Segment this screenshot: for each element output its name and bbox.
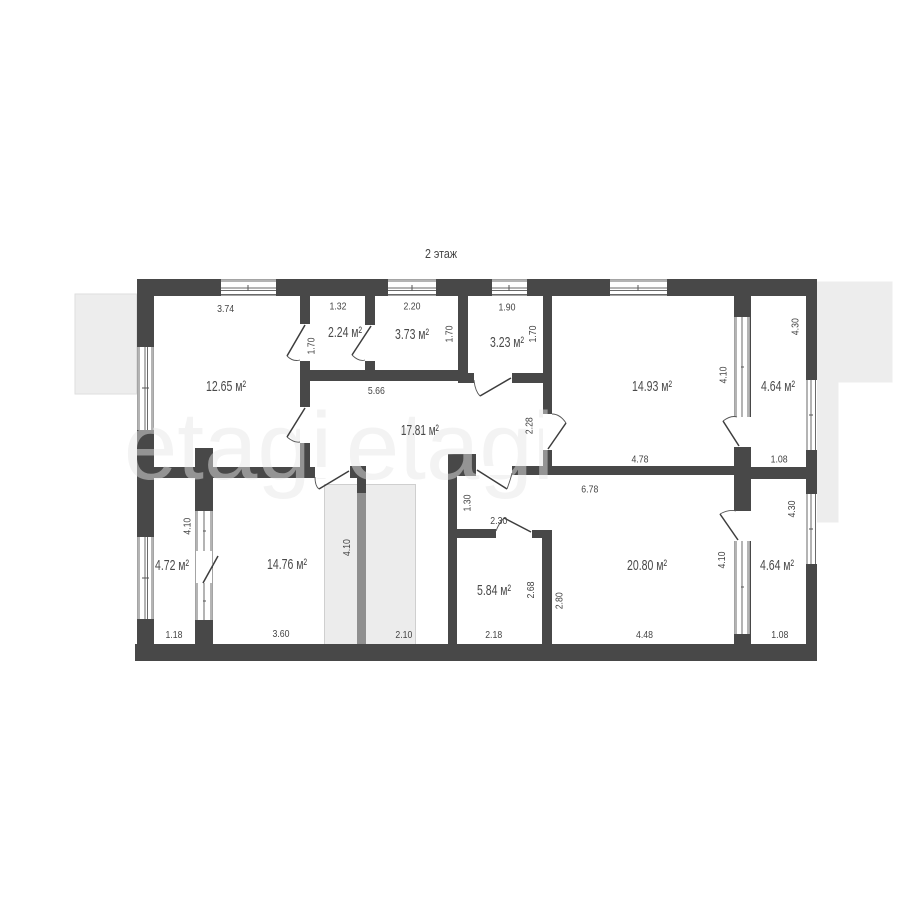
svg-text:12.65 м²: 12.65 м²	[206, 378, 246, 395]
svg-text:2.10: 2.10	[395, 629, 412, 641]
svg-text:3.60: 3.60	[273, 628, 290, 640]
svg-text:4.72 м²: 4.72 м²	[155, 557, 189, 574]
svg-text:6.78: 6.78	[581, 484, 598, 496]
svg-text:1.90: 1.90	[499, 302, 516, 314]
svg-text:2.80: 2.80	[554, 592, 566, 609]
svg-text:5.84 м²: 5.84 м²	[477, 582, 511, 599]
svg-text:4.10: 4.10	[181, 518, 193, 535]
svg-text:2.68: 2.68	[525, 581, 537, 598]
svg-text:2 этаж: 2 этаж	[425, 247, 458, 261]
svg-text:4.30: 4.30	[786, 500, 798, 517]
svg-text:1.70: 1.70	[527, 325, 539, 342]
svg-text:1.08: 1.08	[771, 629, 788, 641]
svg-text:3.23 м²: 3.23 м²	[490, 334, 524, 351]
svg-text:14.93 м²: 14.93 м²	[632, 378, 672, 395]
svg-text:20.80 м²: 20.80 м²	[627, 557, 667, 574]
svg-text:2.28: 2.28	[524, 417, 536, 434]
svg-text:4.10: 4.10	[716, 551, 728, 568]
svg-text:1.32: 1.32	[330, 301, 347, 313]
svg-text:2.24 м²: 2.24 м²	[328, 324, 362, 341]
svg-text:1.30: 1.30	[461, 494, 473, 511]
svg-text:14.76 м²: 14.76 м²	[267, 556, 307, 573]
svg-text:4.10: 4.10	[341, 539, 353, 556]
svg-text:3.74: 3.74	[217, 303, 234, 315]
svg-text:1.18: 1.18	[166, 629, 183, 641]
svg-text:2.18: 2.18	[485, 629, 502, 641]
svg-text:4.78: 4.78	[632, 454, 649, 466]
svg-text:4.64 м²: 4.64 м²	[760, 557, 794, 574]
svg-text:1.70: 1.70	[444, 325, 456, 342]
svg-text:4.30: 4.30	[789, 318, 801, 335]
svg-text:2.20: 2.20	[404, 301, 421, 313]
svg-text:2.30: 2.30	[490, 515, 507, 527]
svg-text:1.08: 1.08	[771, 454, 788, 466]
svg-text:3.73 м²: 3.73 м²	[395, 326, 429, 343]
svg-text:4.64 м²: 4.64 м²	[761, 378, 795, 395]
svg-text:1.70: 1.70	[306, 337, 318, 354]
svg-text:17.81 м²: 17.81 м²	[401, 422, 439, 439]
svg-text:etagi: etagi	[346, 393, 554, 500]
svg-text:4.10: 4.10	[718, 366, 730, 383]
svg-text:4.48: 4.48	[636, 629, 653, 641]
svg-text:5.66: 5.66	[368, 385, 385, 397]
